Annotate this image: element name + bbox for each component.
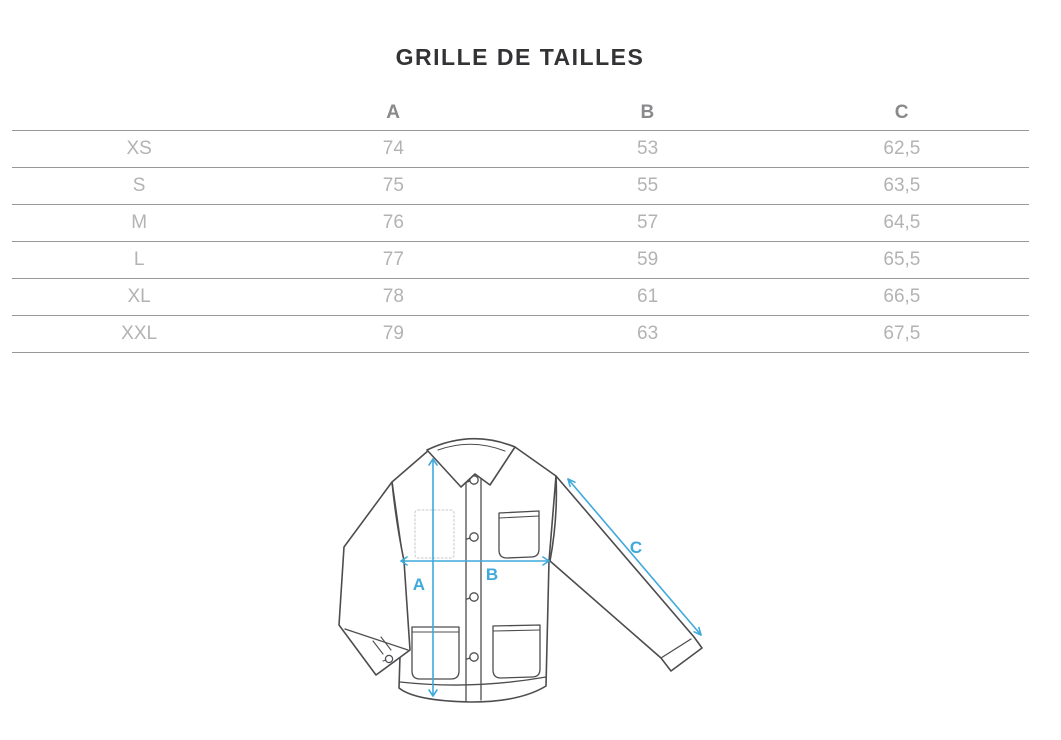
size-table: A B C XS 74 53 62,5 S 75 55 63,5 M 76 57 <box>12 96 1029 353</box>
value-c: 65,5 <box>775 241 1029 278</box>
bottom-left-pocket <box>412 627 459 679</box>
right-sleeve <box>550 476 702 671</box>
table-row: XS 74 53 62,5 <box>12 130 1029 167</box>
measure-label-b: B <box>486 565 498 584</box>
value-c: 66,5 <box>775 278 1029 315</box>
table-row: S 75 55 63,5 <box>12 167 1029 204</box>
table-row: XXL 79 63 67,5 <box>12 315 1029 352</box>
measure-label-a: A <box>413 575 425 594</box>
size-label: M <box>12 204 266 241</box>
jacket-measurement-diagram: A B C <box>330 420 730 720</box>
value-c: 62,5 <box>775 130 1029 167</box>
table-row: M 76 57 64,5 <box>12 204 1029 241</box>
value-a: 77 <box>266 241 520 278</box>
size-label: XS <box>12 130 266 167</box>
size-guide-page: GRILLE DE TAILLES A B C XS 74 53 62,5 S … <box>0 0 1061 740</box>
table-row: XL 78 61 66,5 <box>12 278 1029 315</box>
cuff-button-icon <box>385 655 392 662</box>
size-label: L <box>12 241 266 278</box>
jacket-outline-icon <box>339 439 702 702</box>
value-b: 53 <box>521 130 775 167</box>
size-label: XL <box>12 278 266 315</box>
value-b: 61 <box>521 278 775 315</box>
size-chart-title: GRILLE DE TAILLES <box>0 44 1040 71</box>
column-header-size <box>12 96 266 130</box>
size-label: XXL <box>12 315 266 352</box>
value-c: 64,5 <box>775 204 1029 241</box>
column-header-b: B <box>521 96 775 130</box>
bottom-right-pocket <box>493 625 540 678</box>
table-row: L 77 59 65,5 <box>12 241 1029 278</box>
value-a: 79 <box>266 315 520 352</box>
value-a: 74 <box>266 130 520 167</box>
measure-label-c: C <box>630 538 642 557</box>
value-a: 75 <box>266 167 520 204</box>
column-header-a: A <box>266 96 520 130</box>
value-c: 67,5 <box>775 315 1029 352</box>
value-c: 63,5 <box>775 167 1029 204</box>
value-a: 78 <box>266 278 520 315</box>
value-b: 63 <box>521 315 775 352</box>
value-b: 57 <box>521 204 775 241</box>
column-header-c: C <box>775 96 1029 130</box>
value-b: 55 <box>521 167 775 204</box>
size-table-body: XS 74 53 62,5 S 75 55 63,5 M 76 57 64,5 … <box>12 130 1029 352</box>
value-b: 59 <box>521 241 775 278</box>
size-table-header: A B C <box>12 96 1029 130</box>
value-a: 76 <box>266 204 520 241</box>
header-row: A B C <box>12 96 1029 130</box>
size-label: S <box>12 167 266 204</box>
